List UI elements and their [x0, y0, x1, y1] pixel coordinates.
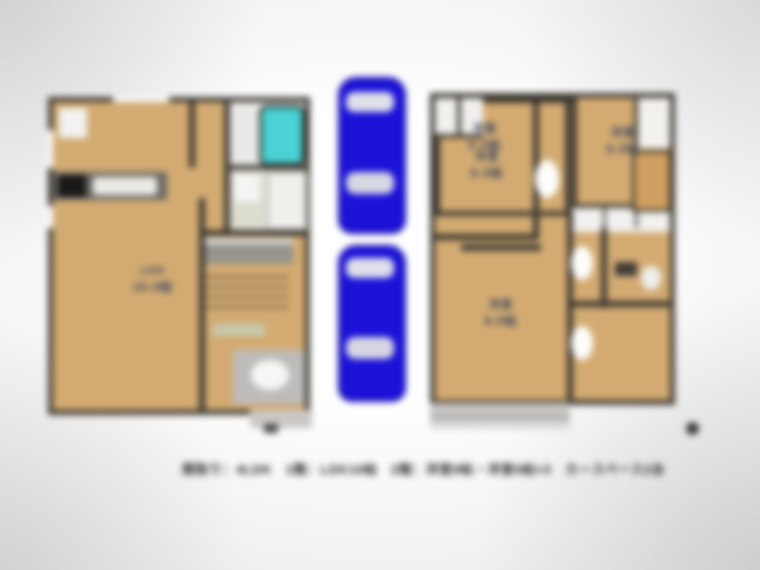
entrance-step	[264, 424, 278, 433]
room-label-nw-name: 洋室	[451, 150, 523, 165]
car-icon-1	[338, 77, 406, 234]
window-left-2	[48, 206, 53, 228]
room-label-ne-size: 6.0帖	[587, 141, 659, 157]
dining-table	[59, 108, 87, 138]
car1-rear-window	[346, 172, 394, 194]
balcony-2f	[430, 403, 570, 429]
entrance-porch	[250, 410, 312, 428]
wc-toilet-icon	[641, 266, 661, 290]
room-label-sw-size: 8.0帖	[465, 313, 537, 329]
floorplan-2f: 洋室 6.0帖 洋室 6.0帖 洋室 6.0帖 洋室 8.0帖	[430, 93, 675, 405]
window-left-1	[48, 130, 53, 168]
caption-text: 間取り：4LDK 1階：LDK16帖 2階：洋室8帖・洋室6帖×3 カースペース…	[182, 459, 578, 478]
wall-wc-bottom	[573, 301, 670, 307]
wall-hall-ne	[565, 98, 571, 210]
staircase-1f	[205, 268, 289, 314]
car2-windshield	[346, 258, 394, 278]
car2-rear-window	[346, 337, 394, 359]
room-label-sw-name: 洋室	[465, 298, 537, 313]
room-label-ldk-name: LDK	[109, 264, 197, 279]
floorplan-image: LDK 16.0帖	[0, 0, 760, 570]
wall-dining-hall	[189, 102, 195, 168]
room-label-ne-name: 洋室	[587, 126, 659, 141]
room-label-se-name: 洋室	[453, 122, 517, 137]
closet-sw	[461, 244, 541, 251]
kitchen-sink	[93, 177, 157, 195]
wc-fixture	[615, 262, 637, 276]
hall-mat	[213, 324, 265, 336]
car-icon-2	[338, 245, 406, 402]
room-label-nw: 洋室 6.0帖	[451, 150, 523, 181]
wall-wc-left	[601, 228, 607, 308]
balcony-se	[632, 150, 672, 212]
blurred-photo-layer: LDK 16.0帖	[0, 0, 760, 570]
vanity-unit	[267, 172, 307, 230]
floorplan-1f: LDK 16.0帖	[48, 97, 310, 415]
room-label-nw-size: 6.0帖	[451, 165, 523, 181]
room-label-ldk: LDK 16.0帖	[109, 264, 197, 295]
wall-nw-sw	[435, 234, 539, 240]
washing-machine	[234, 174, 260, 202]
room-label-se: 洋室 6.0帖	[453, 122, 517, 153]
north-mark-icon	[686, 422, 699, 435]
stove-icon	[58, 175, 86, 197]
toilet-icon	[251, 360, 289, 390]
door-arc-1	[571, 246, 593, 280]
closet-ne-divider-1	[603, 208, 606, 228]
washbasin-counter	[205, 238, 293, 264]
window-top	[113, 97, 169, 102]
stair-landing	[535, 160, 559, 198]
car1-windshield	[346, 92, 394, 112]
wall-washroom-bottom	[199, 230, 305, 236]
door-arc-2	[571, 326, 593, 360]
room-label-ldk-size: 16.0帖	[109, 279, 197, 295]
room-label-ne: 洋室 6.0帖	[587, 126, 659, 157]
room-label-sw: 洋室 8.0帖	[465, 298, 537, 329]
bathtub	[259, 105, 305, 166]
